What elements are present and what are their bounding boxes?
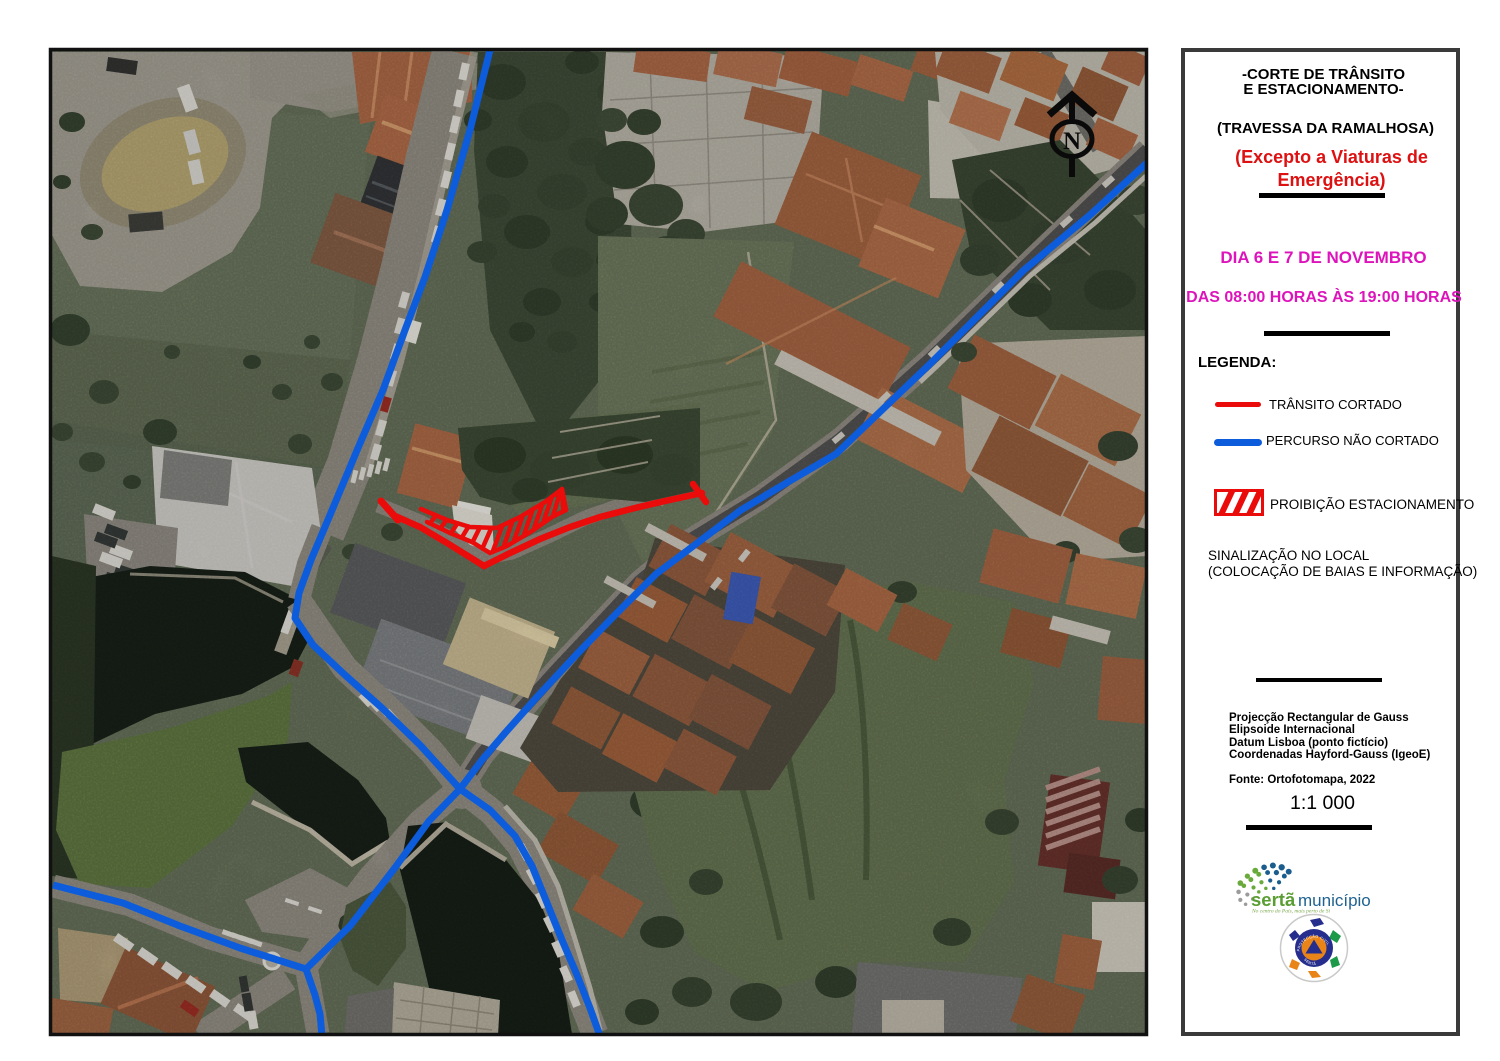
svg-text:município: município <box>1298 891 1371 910</box>
svg-text:N: N <box>1063 128 1081 155</box>
svg-text:sertã: sertã <box>1251 889 1296 910</box>
